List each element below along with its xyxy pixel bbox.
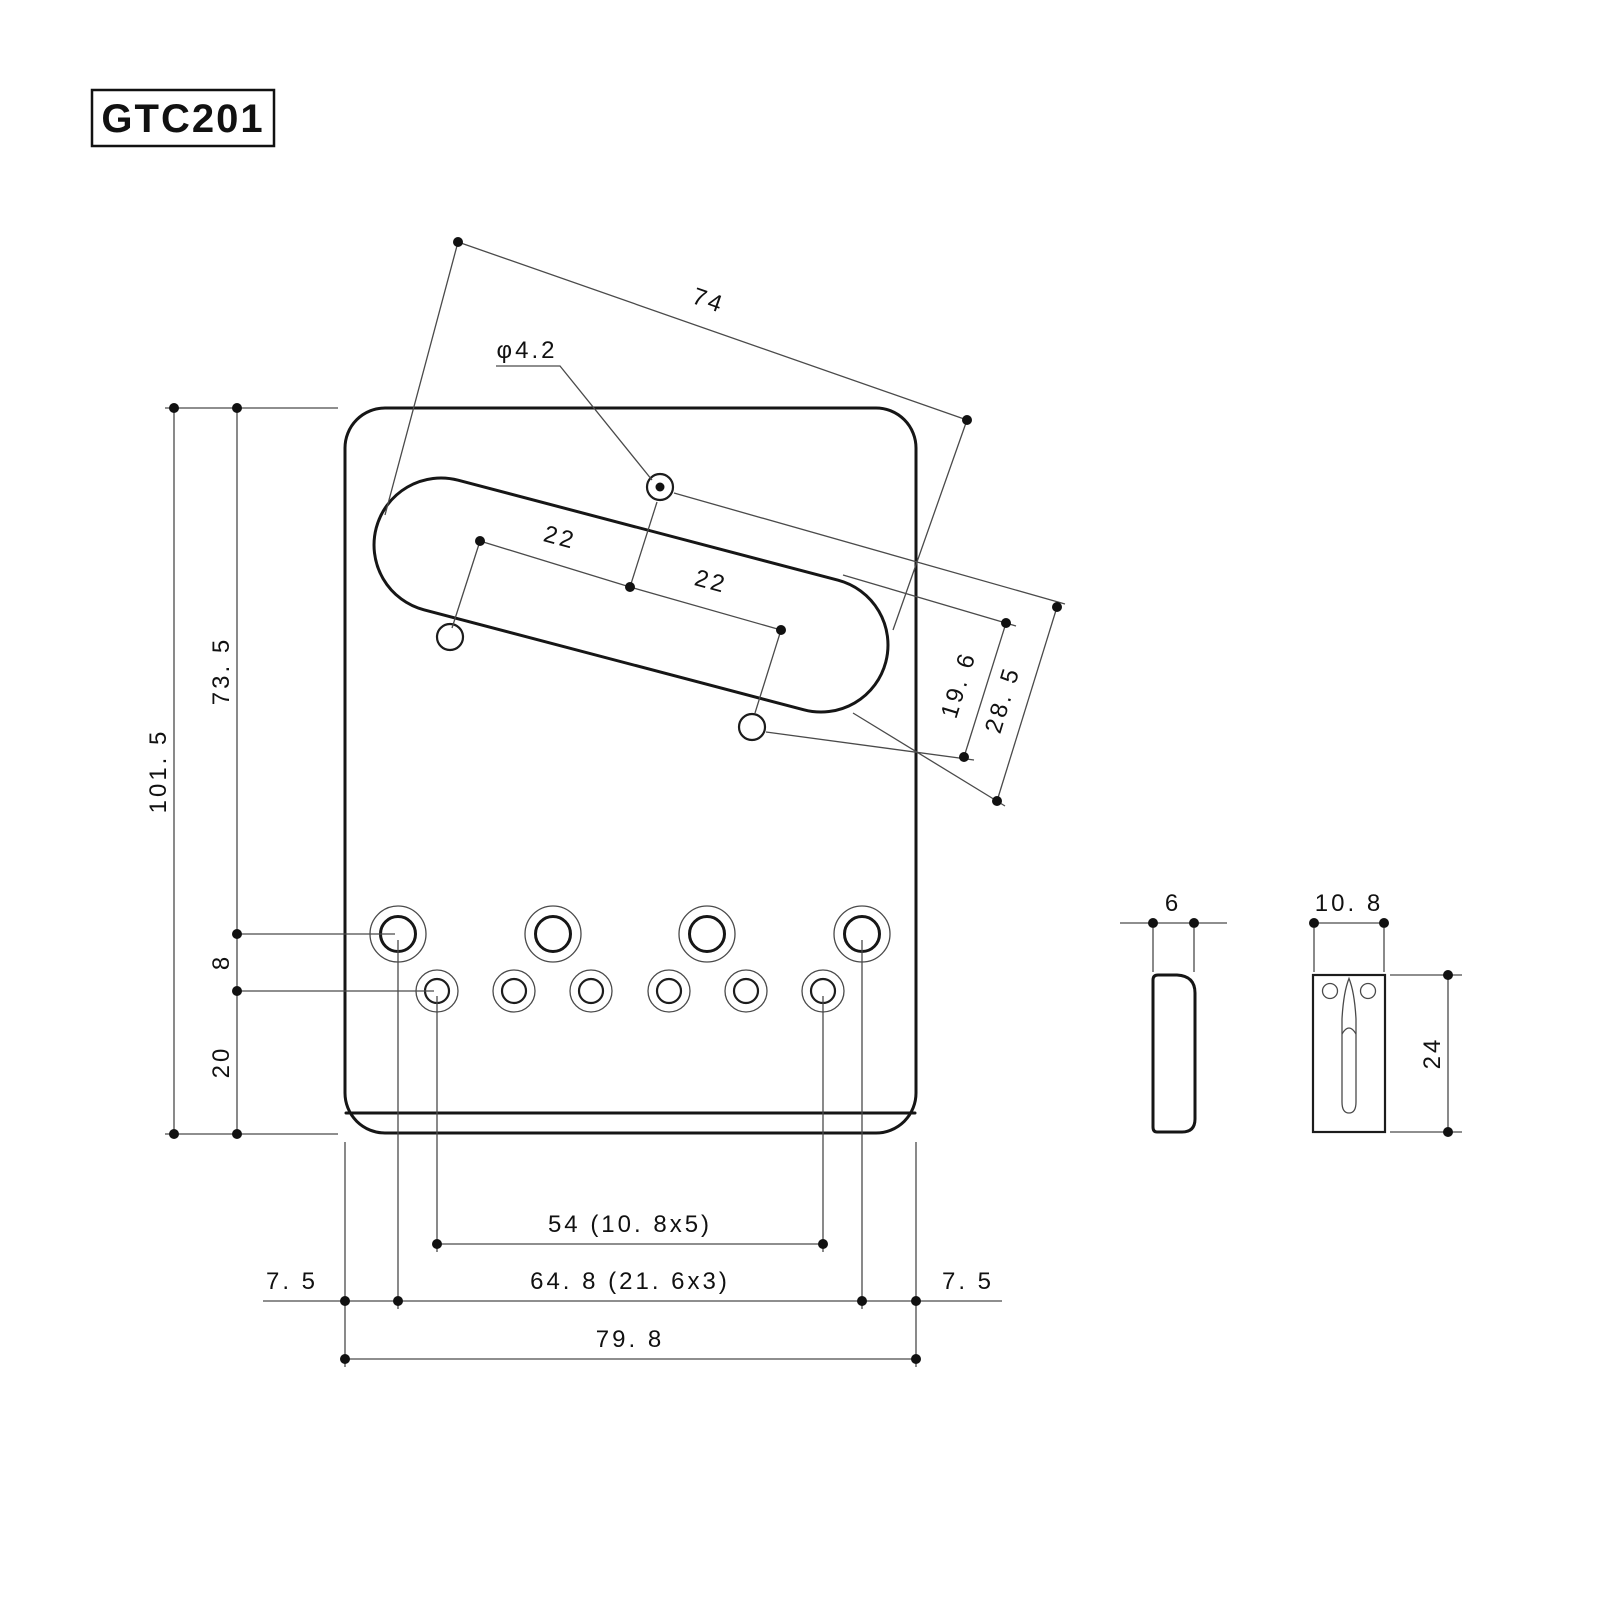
dim-79-8-label: 79. 8 bbox=[596, 1326, 664, 1353]
part-code-label: GTC201 bbox=[101, 97, 264, 141]
big-hole-3-counterbore bbox=[679, 906, 735, 962]
big-hole-2 bbox=[536, 917, 571, 952]
string-hole-5 bbox=[734, 979, 758, 1003]
dim-7-5-left-label: 7. 5 bbox=[266, 1268, 318, 1295]
big-hole-3 bbox=[690, 917, 725, 952]
dim-left-column: 101. 5 73. 5 8 20 bbox=[145, 403, 434, 1139]
big-hole-2-counterbore bbox=[525, 906, 581, 962]
dim-hole-dia-label: φ4.2 bbox=[497, 337, 558, 364]
main-view bbox=[345, 408, 916, 1133]
dim-7-5-right-label: 7. 5 bbox=[942, 1268, 994, 1295]
dim-74-label: 74 bbox=[689, 283, 729, 319]
pickup-cutout bbox=[374, 478, 888, 712]
string-hole-3-ring bbox=[570, 970, 612, 1012]
dim-24-label: 24 bbox=[1419, 1037, 1446, 1070]
drawing-canvas: GTC201 bbox=[0, 0, 1600, 1600]
saddle-string-groove-right bbox=[1361, 984, 1376, 999]
string-hole-3 bbox=[579, 979, 603, 1003]
dim-bottom-block: 54 (10. 8x5) 7. 5 64. 8 (21. 6x3) 7. 5 7… bbox=[263, 940, 1002, 1367]
string-hole-4-ring bbox=[648, 970, 690, 1012]
dim-54-label: 54 (10. 8x5) bbox=[548, 1211, 712, 1238]
dim-10-8-label: 10. 8 bbox=[1315, 890, 1383, 917]
string-hole-5-ring bbox=[725, 970, 767, 1012]
string-hole-4 bbox=[657, 979, 681, 1003]
pickup-screw-hole-right bbox=[739, 714, 765, 740]
dim-74: 74 bbox=[385, 237, 972, 630]
saddle-front-outline bbox=[1313, 975, 1385, 1132]
dim-73-5-label: 73. 5 bbox=[208, 637, 235, 705]
dim-22-pair: 22 22 bbox=[452, 502, 786, 713]
pickup-screw-hole-left bbox=[437, 624, 463, 650]
saddle-profile-outline bbox=[1153, 975, 1195, 1132]
string-hole-2 bbox=[502, 979, 526, 1003]
plate-outline bbox=[345, 408, 916, 1133]
dim-19-6-label: 19. 6 bbox=[936, 648, 982, 721]
dim-101-5-label: 101. 5 bbox=[145, 729, 172, 814]
dim-64-8-label: 64. 8 (21. 6x3) bbox=[530, 1268, 730, 1295]
dim-22a-label: 22 bbox=[541, 521, 580, 555]
dim-22b-label: 22 bbox=[692, 565, 731, 599]
big-hole-row bbox=[370, 906, 890, 962]
mounting-hole-top-center bbox=[656, 483, 665, 492]
dim-8-label: 8 bbox=[208, 954, 235, 970]
saddle-screw-slot bbox=[1342, 1019, 1356, 1113]
dim-28-5: 28. 5 bbox=[674, 493, 1065, 806]
dim-28-5-label: 28. 5 bbox=[980, 663, 1026, 736]
saddle-screw-head-arc bbox=[1342, 1028, 1356, 1034]
dim-19-6: 19. 6 bbox=[766, 575, 1016, 762]
dim-6-label: 6 bbox=[1165, 890, 1181, 917]
saddle-string-groove-left bbox=[1323, 984, 1338, 999]
small-hole-row bbox=[416, 970, 844, 1012]
string-hole-2-ring bbox=[493, 970, 535, 1012]
side-view-front: 10. 8 24 bbox=[1309, 890, 1462, 1137]
dim-20-label: 20 bbox=[208, 1046, 235, 1079]
side-view-profile: 6 bbox=[1120, 890, 1227, 1132]
drawing-page: GTC201 bbox=[0, 0, 1600, 1600]
saddle-screw-slot-point bbox=[1342, 979, 1356, 1020]
title-block: GTC201 bbox=[92, 90, 274, 146]
